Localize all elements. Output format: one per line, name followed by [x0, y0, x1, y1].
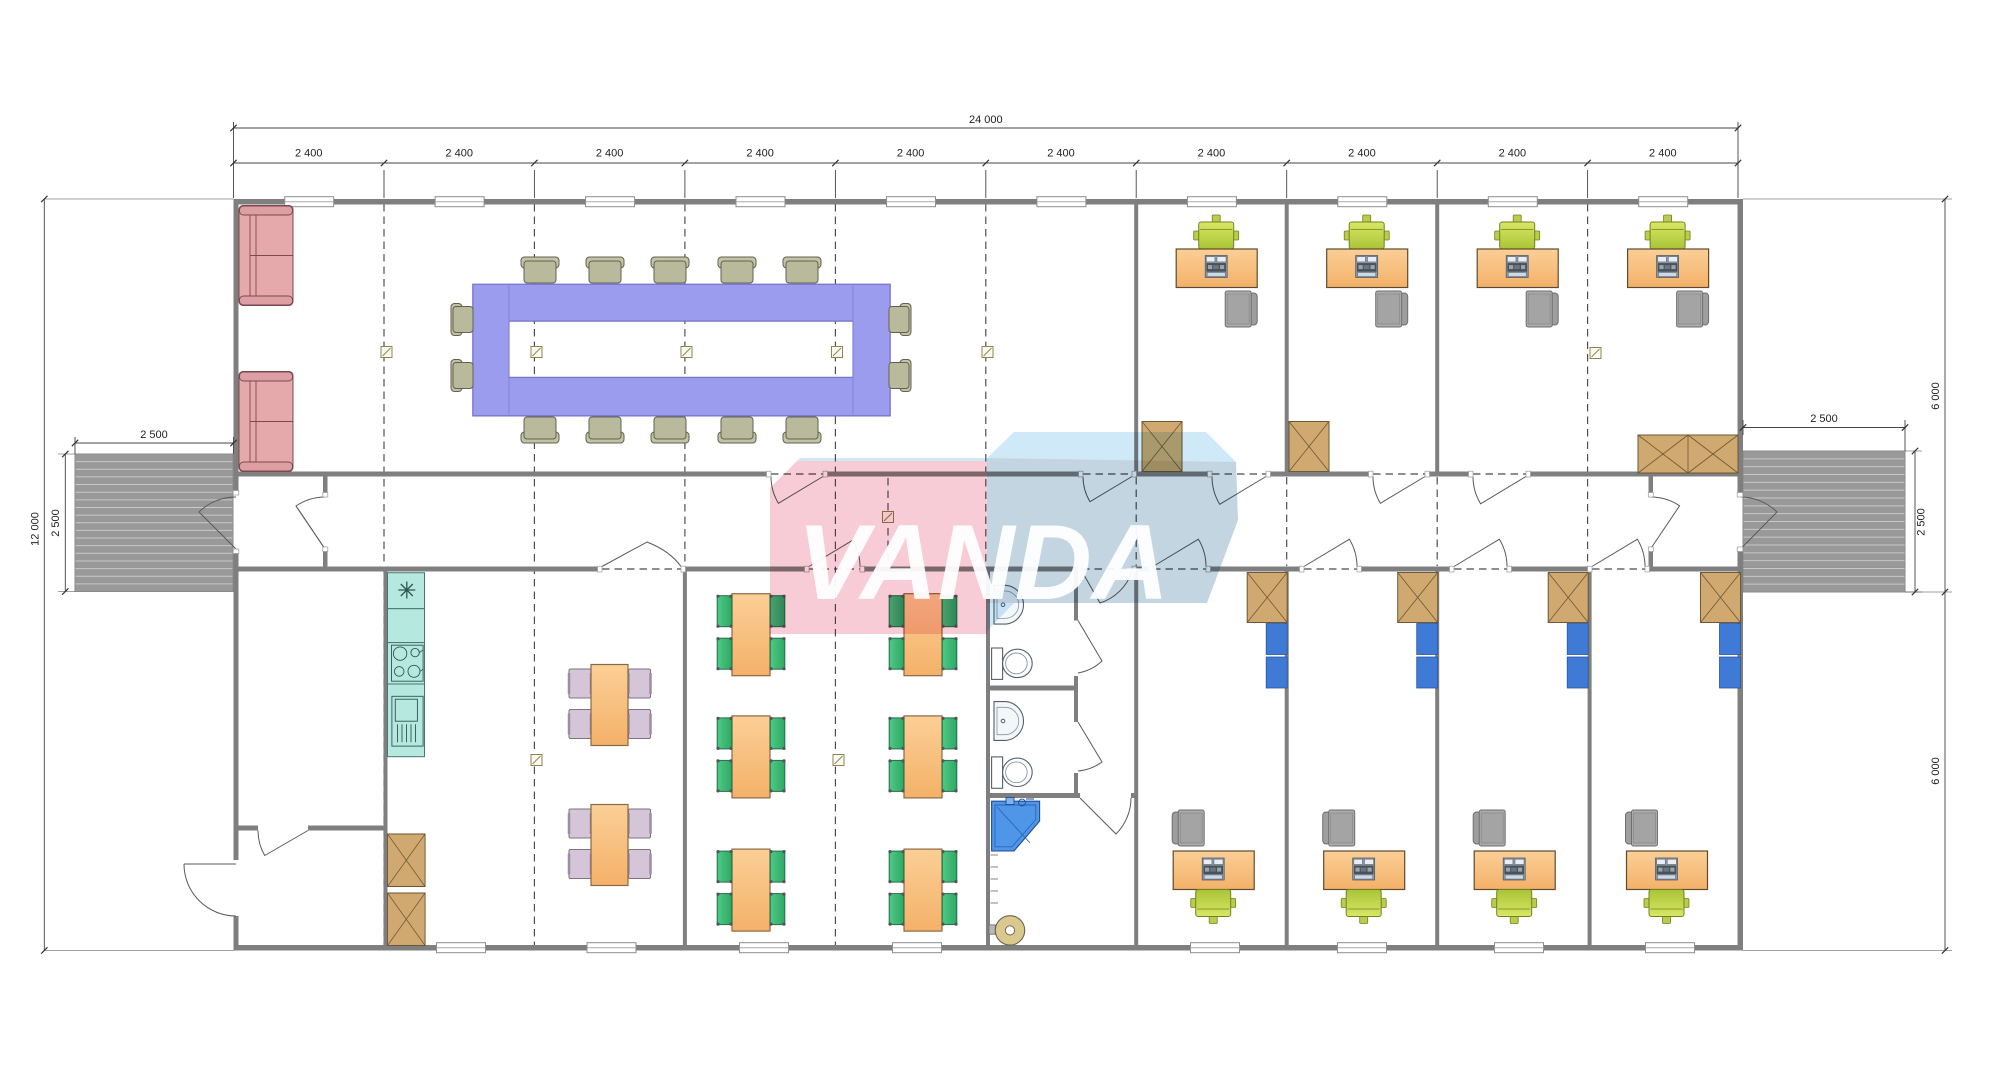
svg-text:6 000: 6 000	[1930, 382, 1942, 410]
svg-text:24 000: 24 000	[969, 114, 1003, 126]
svg-text:2 500: 2 500	[1810, 413, 1838, 425]
svg-text:2 400: 2 400	[746, 148, 774, 160]
svg-text:2 400: 2 400	[596, 148, 624, 160]
svg-text:2 400: 2 400	[1198, 148, 1226, 160]
svg-text:2 400: 2 400	[897, 148, 925, 160]
svg-text:2 400: 2 400	[445, 148, 473, 160]
svg-text:2 400: 2 400	[1649, 148, 1677, 160]
svg-text:6 000: 6 000	[1930, 757, 1942, 785]
svg-text:VANDA: VANDA	[797, 502, 1169, 622]
svg-text:2 400: 2 400	[295, 148, 323, 160]
svg-text:2 500: 2 500	[1916, 508, 1928, 536]
svg-text:2 400: 2 400	[1348, 148, 1376, 160]
svg-text:2 400: 2 400	[1047, 148, 1075, 160]
svg-text:12 000: 12 000	[30, 512, 42, 546]
svg-text:2 400: 2 400	[1499, 148, 1527, 160]
svg-text:2 500: 2 500	[140, 429, 168, 441]
svg-text:2 500: 2 500	[50, 509, 62, 537]
